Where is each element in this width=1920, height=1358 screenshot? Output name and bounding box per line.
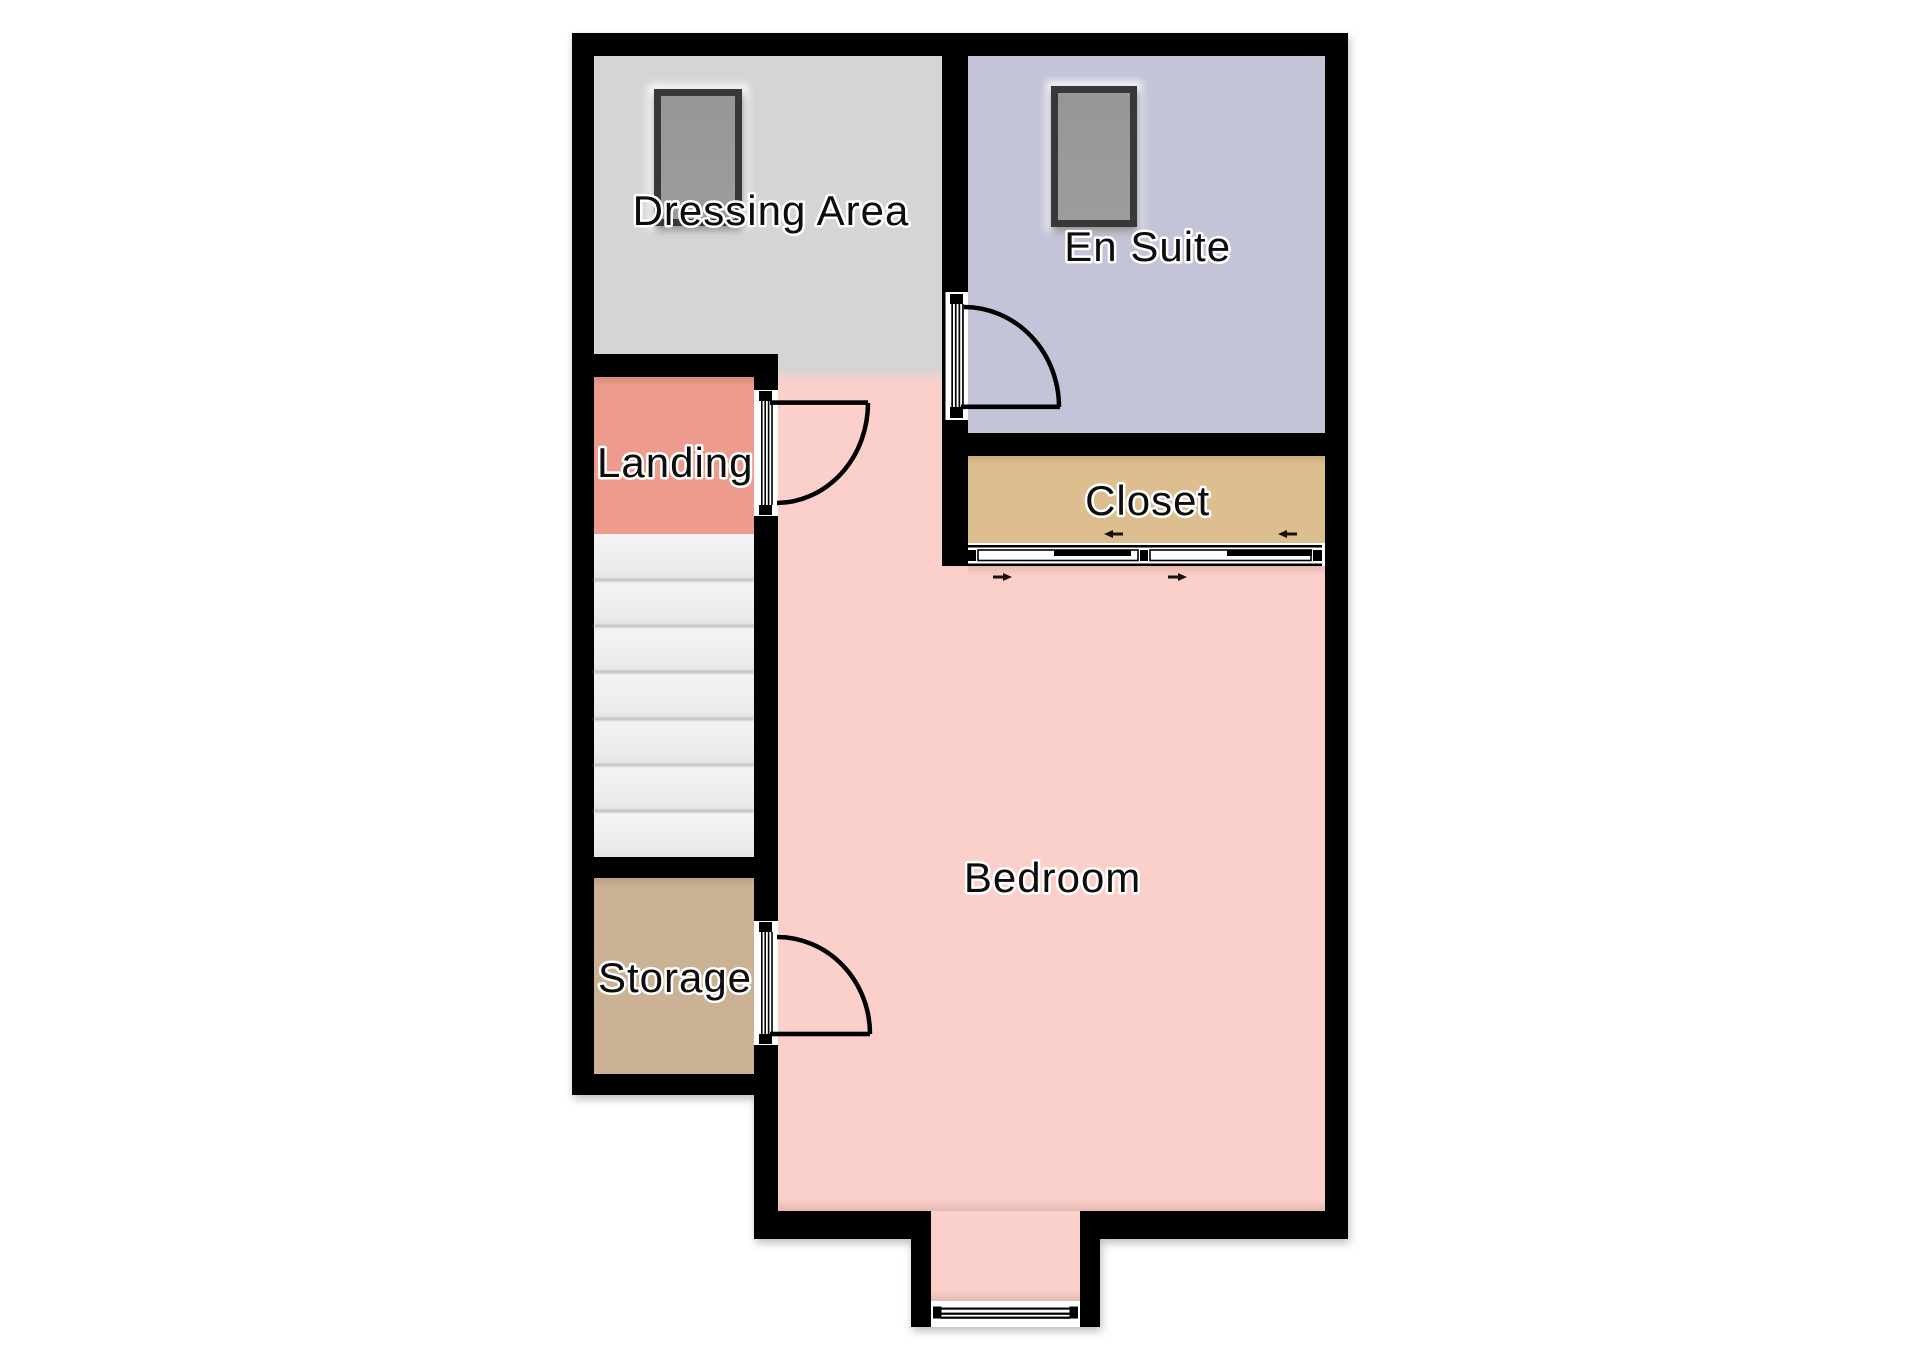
svg-text:Closet: Closet [1085,477,1210,524]
svg-text:En Suite: En Suite [1064,223,1231,270]
svg-text:Bedroom: Bedroom [964,854,1141,901]
svg-text:Storage: Storage [598,954,752,1001]
svg-text:Landing: Landing [597,439,753,486]
svg-text:Dressing Area: Dressing Area [633,187,910,234]
